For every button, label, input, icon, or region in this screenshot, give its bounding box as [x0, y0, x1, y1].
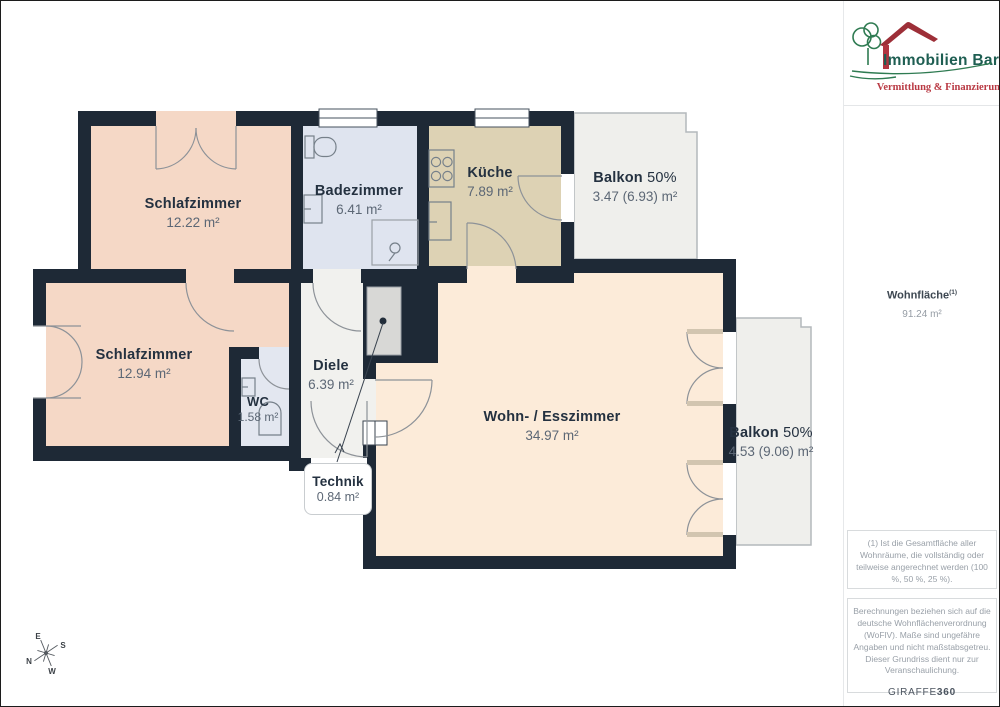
- tree-icon: [853, 23, 881, 65]
- footnote-2: Berechnungen beziehen sich auf die deuts…: [847, 598, 997, 693]
- label-wohn-esszimmer: Wohn- / Esszimmer 34.97 m²: [484, 409, 621, 443]
- label-balkon-1: Balkon 50% 3.47 (6.93) m²: [593, 170, 678, 204]
- label-wc: WC 1.58 m²: [238, 394, 279, 424]
- technik-closet: [367, 287, 401, 355]
- footnote-1: (1) Ist die Gesamtfläche aller Wohnräume…: [847, 530, 997, 589]
- compass-s-label: S: [60, 641, 66, 650]
- sidebar-divider: [843, 1, 844, 707]
- label-schlafzimmer-2: Schlafzimmer 12.94 m²: [96, 347, 193, 381]
- company-name: Immobilien Bart: [883, 52, 1000, 69]
- label-diele: Diele 6.39 m²: [308, 358, 354, 392]
- label-balkon-2: Balkon 50% 4.53 (9.06) m²: [729, 425, 814, 459]
- compass-e-label: E: [35, 632, 41, 641]
- compass-icon: E S N W: [26, 632, 66, 676]
- company-tagline: Vermittlung & Finanzierung: [877, 82, 1000, 93]
- giraffe360-brand: GIRAFFE360: [853, 686, 991, 700]
- floorplan-page: E S N W Schlafzimmer 12.22 m² Badezimmer…: [0, 0, 1000, 707]
- label-kueche: Küche 7.89 m²: [467, 165, 513, 199]
- label-technik-callout: Technik 0.84 m²: [304, 463, 372, 515]
- company-logo-graphic: Immobilien Bart Vermittlung & Finanzieru…: [844, 1, 1000, 105]
- company-logo: Immobilien Bart Vermittlung & Finanzieru…: [844, 1, 1000, 106]
- compass-w-label: W: [48, 667, 56, 676]
- label-schlafzimmer-1: Schlafzimmer 12.22 m²: [145, 196, 242, 230]
- compass-n-label: N: [26, 657, 32, 666]
- roof-icon: [880, 22, 938, 47]
- living-area-summary: Wohnfläche(1) 91.24 m²: [844, 289, 1000, 320]
- living-area-value: 91.24 m²: [844, 309, 1000, 320]
- label-badezimmer: Badezimmer 6.41 m²: [315, 183, 403, 217]
